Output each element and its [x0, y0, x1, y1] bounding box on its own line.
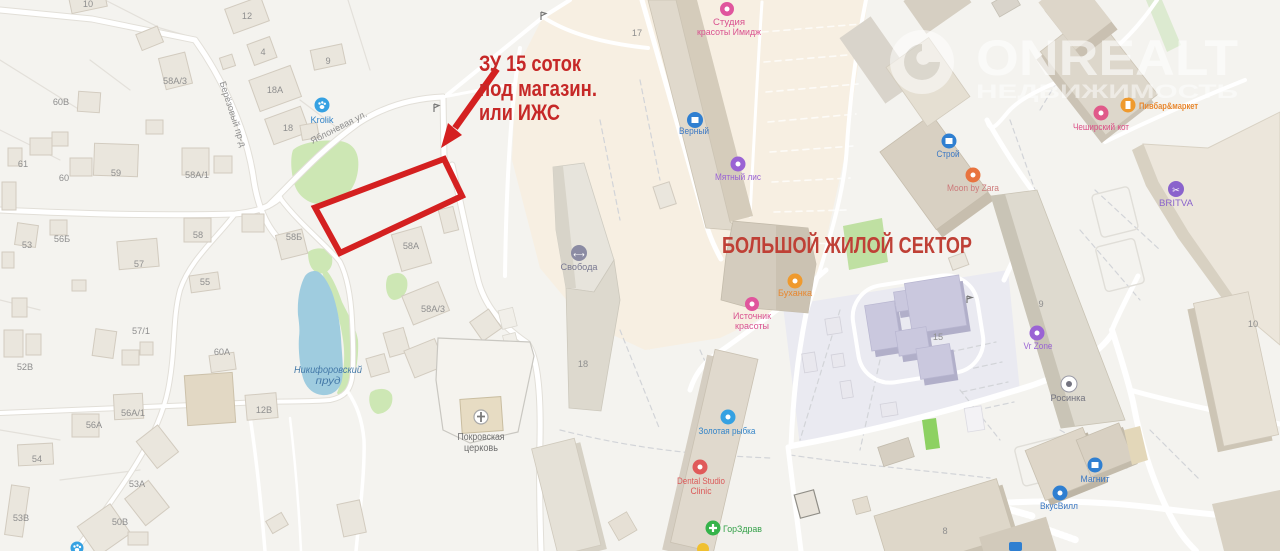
svg-text:12: 12 — [242, 11, 252, 21]
svg-text:церковь: церковь — [464, 443, 498, 454]
svg-text:красоты Имидж: красоты Имидж — [697, 27, 761, 37]
svg-text:или ИЖС: или ИЖС — [479, 100, 560, 125]
svg-text:красоты: красоты — [735, 321, 769, 331]
svg-text:Moon by Zara: Moon by Zara — [947, 183, 1000, 194]
svg-text:⟷: ⟷ — [573, 250, 585, 259]
svg-text:56А: 56А — [86, 420, 103, 430]
svg-text:18: 18 — [578, 359, 588, 369]
svg-text:Мятный лис: Мятный лис — [715, 172, 761, 183]
svg-text:Vr Zone: Vr Zone — [1024, 341, 1053, 352]
svg-text:52В: 52В — [17, 362, 33, 372]
svg-text:Clinic: Clinic — [691, 486, 712, 496]
svg-text:Верный: Верный — [679, 126, 709, 137]
svg-text:54: 54 — [32, 454, 42, 464]
svg-text:Строй: Строй — [937, 149, 960, 160]
svg-text:4: 4 — [260, 47, 265, 57]
svg-text:60: 60 — [59, 173, 69, 183]
svg-text:58А/3: 58А/3 — [163, 76, 187, 86]
svg-text:53А: 53А — [129, 479, 146, 489]
svg-text:58Б: 58Б — [286, 232, 302, 242]
svg-text:10: 10 — [83, 0, 93, 9]
svg-text:58А: 58А — [403, 241, 420, 251]
svg-text:61: 61 — [18, 159, 28, 169]
svg-text:ГорЗдрав: ГорЗдрав — [723, 524, 762, 535]
svg-text:Золотая рыбка: Золотая рыбка — [699, 426, 757, 437]
svg-text:✂: ✂ — [1172, 185, 1180, 195]
svg-text:Dental Studio: Dental Studio — [677, 476, 725, 486]
svg-text:Свобода: Свобода — [561, 262, 599, 273]
svg-text:57/1: 57/1 — [132, 326, 150, 336]
svg-text:9: 9 — [1038, 299, 1043, 309]
svg-text:Источник: Источник — [733, 311, 771, 321]
svg-text:пруд: пруд — [316, 376, 342, 387]
svg-text:Krolik: Krolik — [311, 115, 334, 126]
svg-text:Буханка: Буханка — [778, 288, 813, 299]
svg-text:58А/1: 58А/1 — [185, 170, 209, 180]
svg-text:50В: 50В — [112, 517, 128, 527]
svg-text:9: 9 — [325, 56, 330, 66]
svg-text:ЗУ 15 соток: ЗУ 15 соток — [479, 51, 582, 76]
svg-text:под магазин.: под магазин. — [479, 76, 597, 101]
svg-text:56А/1: 56А/1 — [121, 408, 145, 418]
svg-text:17: 17 — [632, 28, 642, 38]
svg-text:15: 15 — [933, 332, 943, 342]
svg-text:59: 59 — [111, 168, 121, 178]
svg-text:BRITVA: BRITVA — [1159, 198, 1194, 209]
svg-text:58: 58 — [193, 230, 203, 240]
svg-text:60В: 60В — [53, 97, 69, 107]
svg-text:Чеширский кот: Чеширский кот — [1073, 122, 1130, 133]
svg-text:10: 10 — [1248, 319, 1258, 329]
svg-text:Магнит: Магнит — [1081, 474, 1111, 485]
svg-text:56Б: 56Б — [54, 234, 70, 244]
svg-text:БОЛЬШОЙ ЖИЛОЙ СЕКТОР: БОЛЬШОЙ ЖИЛОЙ СЕКТОР — [722, 231, 972, 258]
svg-text:ВкусВилл: ВкусВилл — [1040, 501, 1078, 512]
svg-text:18: 18 — [283, 123, 293, 133]
svg-text:53В: 53В — [13, 513, 29, 523]
svg-text:18А: 18А — [267, 85, 284, 95]
svg-text:Никифоровский: Никифоровский — [294, 364, 362, 376]
svg-text:НЕДВИЖИМОСТЬ: НЕДВИЖИМОСТЬ — [976, 82, 1238, 103]
svg-text:53: 53 — [22, 240, 32, 250]
svg-text:Росинка: Росинка — [1051, 393, 1087, 404]
svg-text:57: 57 — [134, 259, 144, 269]
svg-text:58А/3: 58А/3 — [421, 304, 445, 314]
svg-text:Студия: Студия — [713, 17, 745, 27]
svg-text:60А: 60А — [214, 347, 231, 357]
svg-text:55: 55 — [200, 277, 210, 287]
svg-text:Покровская: Покровская — [458, 432, 505, 443]
svg-text:ONREALT: ONREALT — [976, 30, 1238, 86]
svg-text:8: 8 — [942, 526, 947, 536]
svg-text:12В: 12В — [256, 405, 272, 415]
